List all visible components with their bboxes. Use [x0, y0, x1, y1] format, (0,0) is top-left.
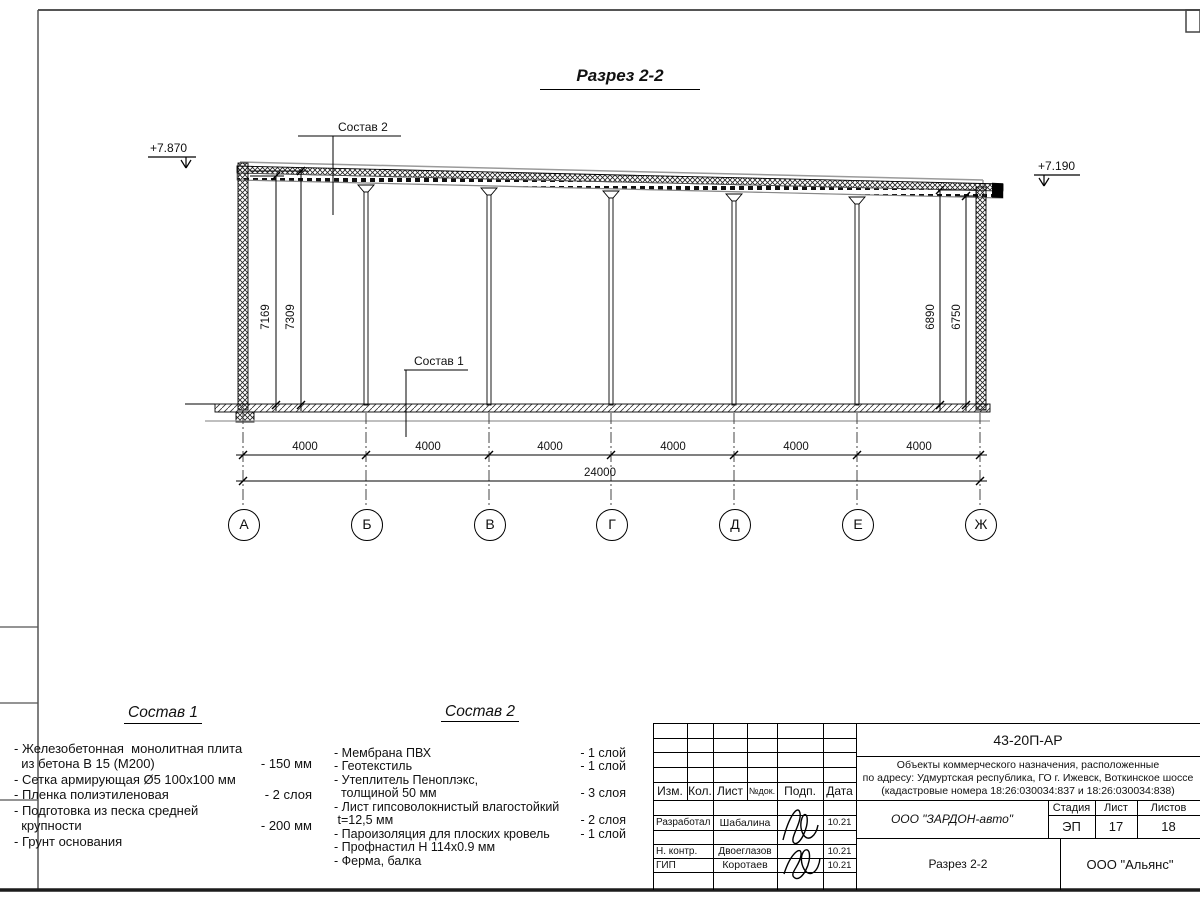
legend-item-value: - 150 мм [261, 756, 312, 772]
dim-left-outer: 7309 [285, 295, 297, 339]
tb-drawing-name: Разрез 2-2 [856, 838, 1060, 890]
legend-item-value: - 2 слоя [265, 787, 312, 803]
legend-item: - Сетка армирующая Ø5 100х100 мм [14, 772, 312, 788]
dim-right-outer: 6890 [925, 295, 937, 339]
building-section [185, 162, 1003, 422]
tb-role-checker: Н. контр. [653, 844, 716, 858]
legend-item-value: - 200 мм [261, 818, 312, 834]
tb-doc-number: 43-20П-АР [856, 723, 1200, 756]
tb-date-checker: 10.21 [823, 844, 856, 858]
title-block: Изм. Кол. Лист №док. Подп. Дата Разработ… [653, 723, 1200, 890]
tb-sheet-value: 17 [1095, 815, 1137, 838]
legend-item-name: - Профнастил Н 114х0.9 мм [334, 841, 495, 855]
dim-bay-4: 4000 [643, 441, 703, 453]
tb-name-developer: Шабалина [713, 815, 777, 830]
legend-floor: Состав 1 - Железобетонная монолитная пли… [14, 705, 312, 849]
grid-axis-e: Е [842, 509, 874, 541]
grid-axis-v: В [474, 509, 506, 541]
grid-axis-a: А [228, 509, 260, 541]
legend-item: - Геотекстиль - 1 слой [334, 760, 626, 774]
legend-item-name: - Сетка армирующая Ø5 100х100 мм [14, 772, 236, 788]
corner-stamp-box [1186, 10, 1200, 32]
legend-item-name: - Геотекстиль [334, 760, 412, 774]
legend-item-value: - 2 слоя [581, 814, 626, 828]
tb-col-ndok: №док. [747, 782, 777, 800]
tb-project-description: Объекты коммерческого назначения, распол… [856, 756, 1200, 800]
tb-name-checker: Двоеглазов [713, 844, 777, 858]
grid-axis-zh: Ж [965, 509, 997, 541]
tb-stage-label: Стадия [1048, 800, 1095, 815]
roof-edge-cap [992, 183, 1003, 198]
tb-col-izm: Изм. [653, 782, 687, 800]
dim-bay-1: 4000 [275, 441, 335, 453]
legend-item-name: - Пленка полиэтиленовая [14, 787, 169, 803]
elevation-right-label: +7.190 [1038, 159, 1075, 173]
legend-roof: Состав 2 - Мембрана ПВХ - 1 слой - Геоте… [334, 705, 626, 868]
tb-date-gip: 10.21 [823, 858, 856, 872]
elevation-mark-right [1034, 175, 1080, 186]
grid-axis-lines [243, 413, 980, 508]
legend-item-name: - Мембрана ПВХ [334, 747, 431, 761]
legend-roof-title: Состав 2 [441, 705, 519, 722]
legend-item: - Профнастил Н 114х0.9 мм [334, 841, 626, 855]
tb-role-gip: ГИП [653, 858, 716, 872]
grid-axis-g: Г [596, 509, 628, 541]
tb-role-developer: Разработал [653, 815, 716, 830]
tb-project-line1: Объекты коммерческого назначения, распол… [897, 759, 1159, 772]
drawing-sheet: Разрез 2-2 +7.870 +7.190 Состав 2 Состав… [0, 0, 1200, 900]
legend-item-value: - 1 слой [580, 760, 626, 774]
tb-sheet-label: Лист [1095, 800, 1137, 815]
tb-project-line2: по адресу: Удмуртская республика, ГО г. … [863, 772, 1194, 785]
tb-col-podp: Подп. [777, 782, 823, 800]
legend-item: - Подготовка из песка средней крупности … [14, 803, 312, 834]
tb-col-data: Дата [823, 782, 856, 800]
tb-col-kol: Кол. [687, 782, 713, 800]
legend-item: - Грунт основания [14, 834, 312, 850]
dim-bay-5: 4000 [766, 441, 826, 453]
tb-col-list: Лист [713, 782, 747, 800]
dim-right-inner: 6750 [951, 295, 963, 339]
callout-floor-label: Состав 1 [414, 354, 464, 368]
legend-item-name: - Ферма, балка [334, 855, 421, 869]
legend-item-value: - 3 слоя [581, 787, 626, 801]
dim-bay-2: 4000 [398, 441, 458, 453]
tb-company: ООО "ЗАРДОН-авто" [856, 800, 1048, 838]
legend-item-name: - Пароизоляция для плоских кровель [334, 828, 550, 842]
dim-bay-6: 4000 [889, 441, 949, 453]
grid-axis-b: Б [351, 509, 383, 541]
tb-name-gip: Коротаев [713, 858, 777, 872]
legend-item: - Утеплитель Пеноплэкс, толщиной 50 мм -… [334, 774, 626, 801]
floor-slab [215, 404, 990, 412]
legend-item-name: - Лист гипсоволокнистый влагостойкий t=1… [334, 801, 559, 828]
dim-left-inner: 7169 [260, 295, 272, 339]
left-wall [238, 163, 248, 410]
tb-sheets-label: Листов [1137, 800, 1200, 815]
grid-axis-d: Д [719, 509, 751, 541]
legend-item: - Пароизоляция для плоских кровель - 1 с… [334, 828, 626, 842]
legend-item-value: - 1 слой [580, 828, 626, 842]
legend-item-name: - Грунт основания [14, 834, 122, 850]
legend-item: - Ферма, балка [334, 855, 626, 869]
tb-contractor: ООО "Альянс" [1060, 838, 1200, 890]
vertical-dimensions [250, 167, 978, 411]
tb-project-line3: (кадастровые номера 18:26:030034:837 и 1… [881, 785, 1175, 798]
view-title: Разрез 2-2 [540, 66, 700, 90]
legend-item-value: - 1 слой [580, 747, 626, 761]
right-wall [976, 187, 986, 410]
legend-item: - Железобетонная монолитная плита из бет… [14, 741, 312, 772]
legend-item-name: - Подготовка из песка средней крупности [14, 803, 198, 834]
columns [358, 185, 865, 405]
legend-item: - Пленка полиэтиленовая - 2 слоя [14, 787, 312, 803]
dim-total: 24000 [560, 467, 640, 479]
legend-item-name: - Железобетонная монолитная плита из бет… [14, 741, 242, 772]
legend-item-name: - Утеплитель Пеноплэкс, толщиной 50 мм [334, 774, 478, 801]
elevation-mark-left [148, 157, 196, 168]
tb-sheets-value: 18 [1137, 815, 1200, 838]
legend-floor-title: Состав 1 [124, 705, 202, 724]
tb-stage-value: ЭП [1048, 815, 1095, 838]
elevation-left-label: +7.870 [150, 141, 187, 155]
callout-roof-label: Состав 2 [338, 120, 388, 134]
tb-date-developer: 10.21 [823, 815, 856, 830]
legend-item: - Мембрана ПВХ - 1 слой [334, 747, 626, 761]
legend-item: - Лист гипсоволокнистый влагостойкий t=1… [334, 801, 626, 828]
dim-bay-3: 4000 [520, 441, 580, 453]
